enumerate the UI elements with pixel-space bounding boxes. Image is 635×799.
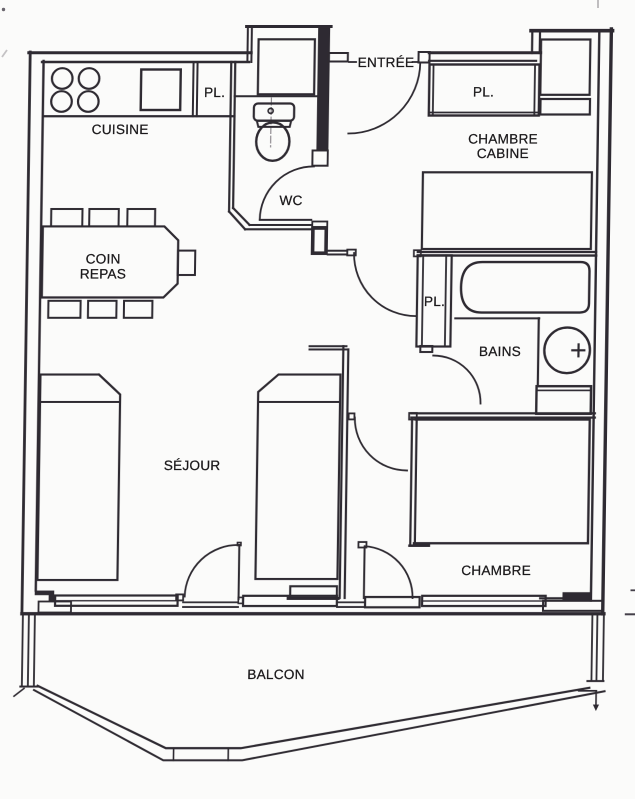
svg-text:CHAMBRE: CHAMBRE [468, 132, 538, 147]
svg-text:PL.: PL. [204, 85, 225, 100]
svg-text:BALCON: BALCON [247, 667, 305, 682]
svg-text:CUISINE: CUISINE [92, 122, 149, 137]
svg-text:PL.: PL. [424, 294, 445, 309]
svg-text:PL.: PL. [473, 84, 494, 99]
svg-text:CHAMBRE: CHAMBRE [461, 563, 531, 578]
svg-text:COIN: COIN [86, 251, 121, 266]
svg-text:ENTRÉE: ENTRÉE [358, 55, 415, 70]
svg-text:CABINE: CABINE [477, 146, 529, 161]
svg-text:REPAS: REPAS [80, 266, 127, 281]
svg-text:WC: WC [279, 193, 302, 208]
svg-text:BAINS: BAINS [479, 344, 521, 359]
svg-text:SÉJOUR: SÉJOUR [164, 458, 221, 473]
